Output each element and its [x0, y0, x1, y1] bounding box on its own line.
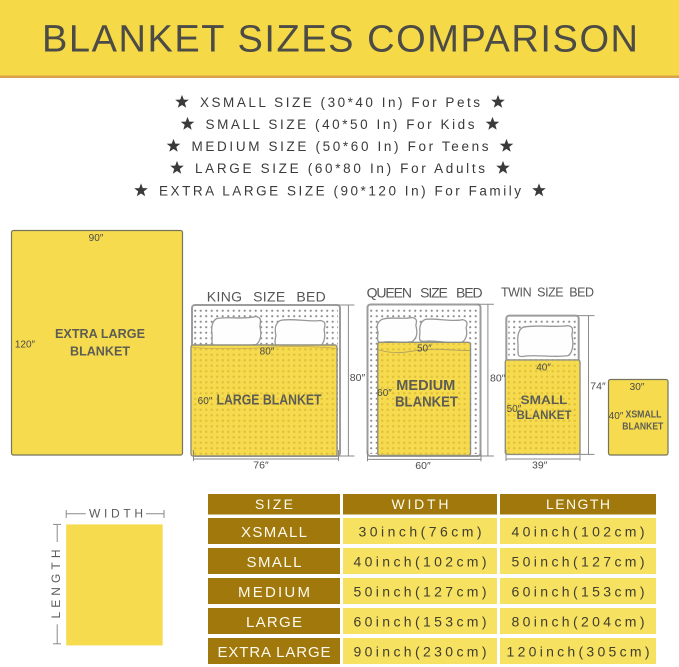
- svg-text:40″: 40″: [536, 363, 551, 374]
- svg-text:80″: 80″: [260, 347, 275, 358]
- svg-text:MEDIUM: MEDIUM: [238, 584, 310, 601]
- svg-text:60″: 60″: [377, 388, 392, 399]
- svg-text:76″: 76″: [253, 460, 269, 472]
- svg-text:50″: 50″: [417, 344, 432, 355]
- svg-text:SIZE: SIZE: [255, 496, 293, 512]
- svg-text:90″: 90″: [89, 233, 104, 244]
- svg-text:MEDIUM: MEDIUM: [396, 377, 455, 394]
- svg-text:EXTRA LARGE: EXTRA LARGE: [218, 644, 331, 661]
- svg-text:SMALL SIZE (40*50 In) For Kids: SMALL SIZE (40*50 In) For Kids: [206, 117, 475, 132]
- svg-text:BLANKET SIZES COMPARISON: BLANKET SIZES COMPARISON: [42, 19, 638, 61]
- svg-text:80″: 80″: [490, 373, 506, 385]
- svg-text:30inch(76cm): 30inch(76cm): [359, 524, 482, 540]
- svg-text:LENGTH: LENGTH: [546, 496, 610, 512]
- svg-text:WIDTH: WIDTH: [89, 507, 143, 521]
- svg-text:SMALL: SMALL: [247, 554, 302, 571]
- svg-text:39″: 39″: [532, 460, 548, 472]
- svg-text:LARGE SIZE (60*80 In) For Adul: LARGE SIZE (60*80 In) For Adults: [195, 161, 485, 176]
- svg-text:QUEEN SIZE BED: QUEEN SIZE BED: [367, 285, 483, 301]
- svg-text:30″: 30″: [630, 382, 645, 393]
- svg-text:BLANKET: BLANKET: [622, 421, 663, 433]
- svg-text:LARGE BLANKET: LARGE BLANKET: [217, 392, 322, 409]
- svg-text:KING SIZE BED: KING SIZE BED: [207, 289, 326, 305]
- svg-text:XSMALL: XSMALL: [241, 524, 307, 541]
- svg-text:SMALL: SMALL: [521, 393, 568, 407]
- svg-text:BLANKET: BLANKET: [395, 394, 458, 411]
- svg-text:80″: 80″: [350, 372, 366, 384]
- svg-text:XSMALL: XSMALL: [626, 409, 662, 421]
- svg-text:120″: 120″: [15, 340, 36, 351]
- svg-text:EXTRA LARGE SIZE (90*120 In) F: EXTRA LARGE SIZE (90*120 In) For Family: [159, 183, 521, 198]
- svg-text:74″: 74″: [590, 381, 606, 393]
- svg-text:BLANKET: BLANKET: [70, 344, 130, 359]
- svg-text:XSMALL SIZE (30*40 In) For Pet: XSMALL SIZE (30*40 In) For Pets: [200, 95, 480, 110]
- svg-text:60″: 60″: [198, 396, 213, 407]
- svg-text:MEDIUM SIZE (50*60 In) For Tee: MEDIUM SIZE (50*60 In) For Teens: [192, 139, 489, 154]
- svg-text:WIDTH: WIDTH: [392, 496, 449, 512]
- svg-text:60″: 60″: [415, 460, 431, 472]
- svg-text:LENGTH: LENGTH: [49, 550, 63, 619]
- svg-text:TWIN SIZE BED: TWIN SIZE BED: [501, 286, 594, 300]
- svg-text:EXTRA LARGE: EXTRA LARGE: [55, 326, 145, 341]
- svg-text:BLANKET: BLANKET: [517, 408, 573, 422]
